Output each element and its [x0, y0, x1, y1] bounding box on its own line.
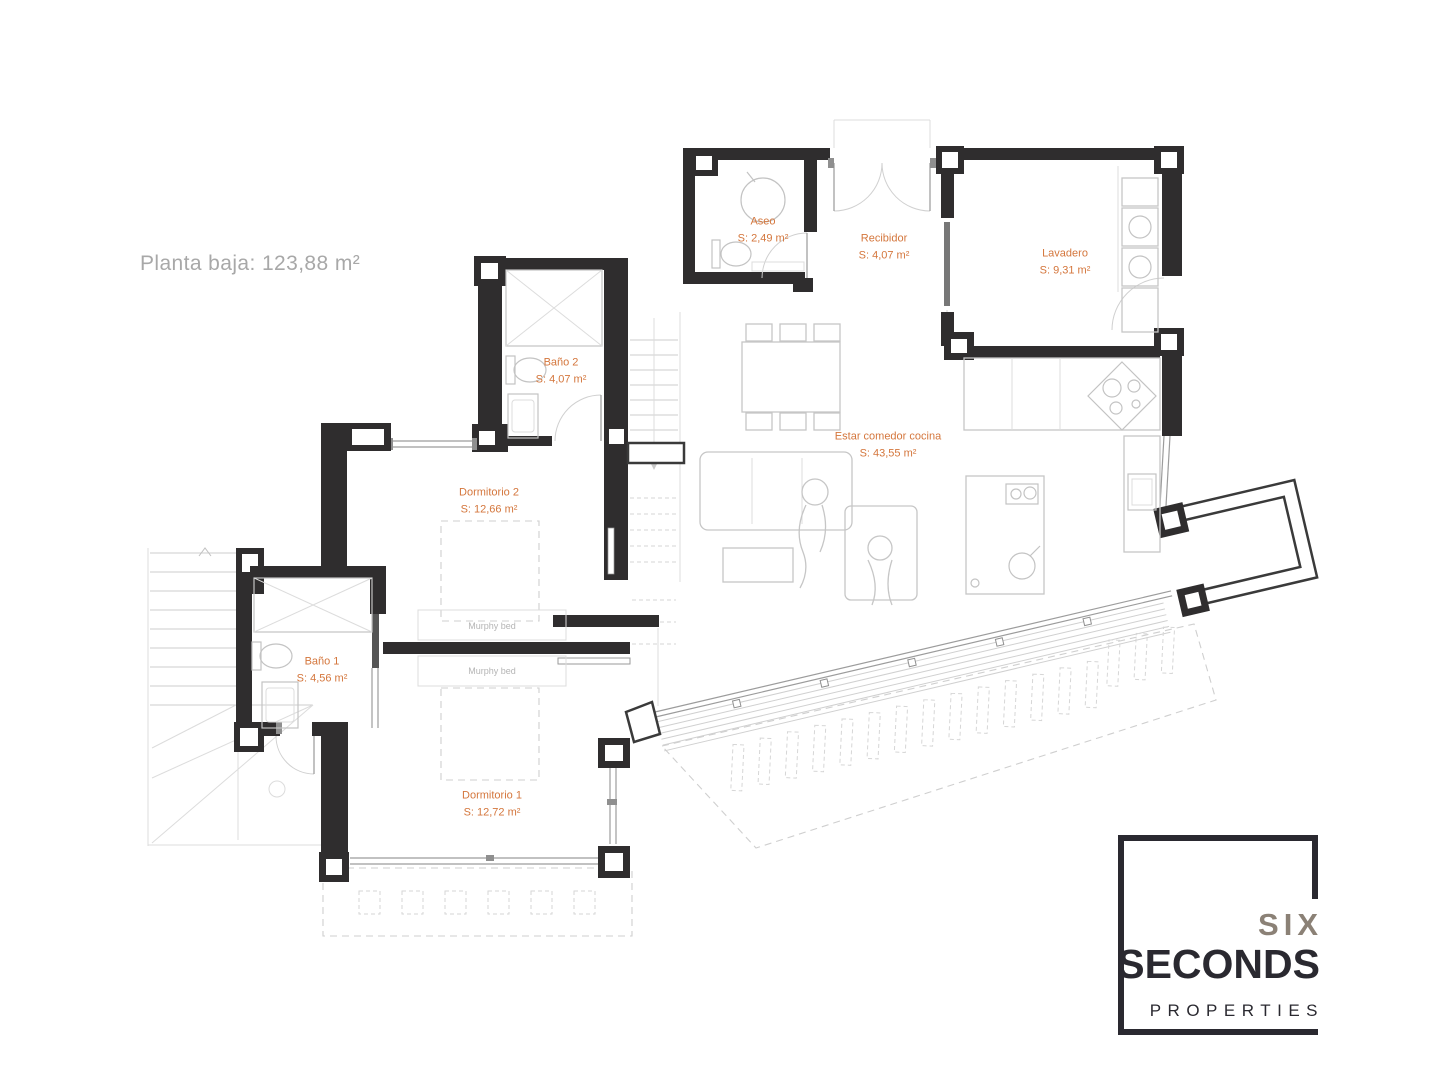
murphy-bed-label-2: Murphy bed — [468, 666, 516, 676]
room-area: S: 43,55 m² — [860, 447, 917, 459]
room-area: S: 4,07 m² — [536, 373, 587, 385]
bano1-walls — [234, 548, 386, 882]
room-label-bano1: Baño 1 S: 4,56 m² — [297, 654, 348, 687]
room-label-aseo: Aseo S: 2,49 m² — [738, 214, 789, 247]
room-label-lavadero: Lavadero S: 9,31 m² — [1040, 246, 1091, 279]
room-area: S: 12,72 m² — [464, 806, 521, 818]
staircase — [628, 312, 684, 706]
kitchen — [964, 358, 1160, 594]
room-name: Dormitorio 1 — [462, 790, 522, 802]
planter-structure — [1153, 476, 1319, 618]
room-name: Lavadero — [1042, 248, 1088, 260]
room-name: Dormitorio 2 — [459, 487, 519, 499]
dorm2-window — [388, 438, 477, 450]
room-name: Recibidor — [861, 233, 907, 245]
logo-border-segment — [1312, 841, 1318, 899]
room-label-dormitorio2: Dormitorio 2 S: 12,66 m² — [459, 485, 519, 518]
room-name: Baño 2 — [544, 357, 579, 369]
room-label-recibidor: Recibidor S: 4,07 m² — [859, 231, 910, 264]
room-area: S: 12,66 m² — [461, 503, 518, 515]
room-area: S: 4,56 m² — [297, 672, 348, 684]
room-name: Baño 1 — [305, 656, 340, 668]
logo-seconds: SECONDS — [1117, 941, 1320, 988]
dorm1 — [350, 688, 660, 878]
room-label-dormitorio1: Dormitorio 1 S: 12,72 m² — [462, 788, 522, 821]
entry-doors — [762, 158, 1164, 330]
murphy-bed-label-1: Murphy bed — [468, 621, 516, 631]
logo-six: SIX — [1258, 907, 1323, 943]
lavadero-fixtures — [1118, 166, 1158, 332]
room-label-bano2: Baño 2 S: 4,07 m² — [536, 355, 587, 388]
living-furniture — [700, 324, 917, 605]
room-area: S: 4,07 m² — [859, 249, 910, 261]
logo-properties: PROPERTIES — [1150, 1001, 1324, 1021]
floor-plan-page: Planta baja: 123,88 m² Aseo S: 2,49 m² R… — [0, 0, 1440, 1080]
terrace-deck — [655, 591, 1216, 848]
dorm2-furniture — [418, 521, 566, 686]
room-area: S: 2,49 m² — [738, 232, 789, 244]
company-logo: SIX SECONDS PROPERTIES — [1118, 835, 1318, 1035]
pergola — [323, 868, 632, 936]
room-label-estar: Estar comedor cocina S: 43,55 m² — [835, 429, 941, 462]
page-title: Planta baja: 123,88 m² — [140, 252, 360, 276]
entry-porch-lines — [834, 120, 930, 148]
room-area: S: 9,31 m² — [1040, 264, 1091, 276]
room-name: Aseo — [750, 216, 775, 228]
walls-top-block — [683, 146, 1184, 436]
room-name: Estar comedor cocina — [835, 431, 941, 443]
